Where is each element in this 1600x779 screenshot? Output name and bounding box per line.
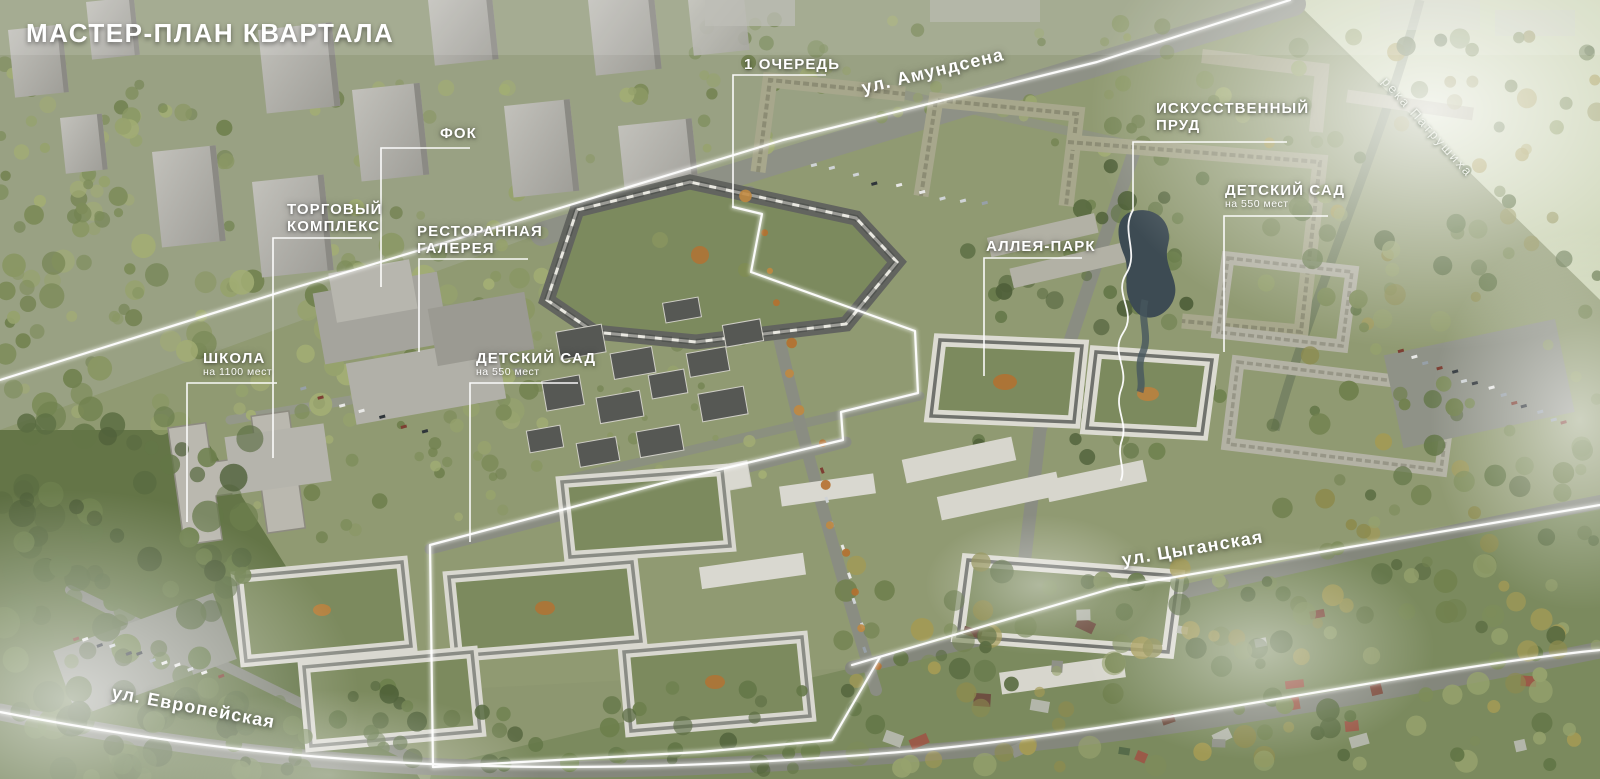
label-alley-park: АЛЛЕЯ-ПАРК	[986, 238, 1096, 255]
label-kindergarten-east-capacity: на 550 мест	[1225, 199, 1345, 211]
label-mall-line1: ТОРГОВЫЙ	[287, 201, 383, 218]
page-title: МАСТЕР-ПЛАН КВАРТАЛА	[26, 18, 394, 49]
label-school-text: ШКОЛА	[203, 350, 265, 367]
label-artificial-pond-line2: ПРУД	[1156, 117, 1200, 134]
annotation-overlay: МАСТЕР-ПЛАН КВАРТАЛА 1 ОЧЕРЕДЬ ФОК ТОРГО…	[0, 0, 1600, 779]
label-kindergarten-east: ДЕТСКИЙ САД на 550 мест	[1225, 182, 1345, 211]
label-fok-text: ФОК	[440, 125, 477, 142]
label-mall-line2: КОМПЛЕКС	[287, 218, 380, 235]
label-phase1: 1 ОЧЕРЕДЬ	[744, 56, 840, 73]
label-restaurant-gallery-line1: РЕСТОРАННАЯ	[417, 223, 543, 240]
label-kindergarten-east-text: ДЕТСКИЙ САД	[1225, 182, 1345, 199]
label-artificial-pond: ИСКУССТВЕННЫЙ ПРУД	[1156, 100, 1309, 134]
street-label-evropeyskaya: ул. Европейская	[110, 682, 277, 733]
label-alley-park-text: АЛЛЕЯ-ПАРК	[986, 238, 1096, 255]
label-artificial-pond-line1: ИСКУССТВЕННЫЙ	[1156, 100, 1309, 117]
label-kindergarten-west-capacity: на 550 мест	[476, 367, 596, 379]
label-phase1-text: 1 ОЧЕРЕДЬ	[744, 56, 840, 73]
label-restaurant-gallery: РЕСТОРАННАЯ ГАЛЕРЕЯ	[417, 223, 543, 257]
masterplan-slide: МАСТЕР-ПЛАН КВАРТАЛА 1 ОЧЕРЕДЬ ФОК ТОРГО…	[0, 0, 1600, 779]
label-mall: ТОРГОВЫЙ КОМПЛЕКС	[287, 201, 383, 235]
label-school: ШКОЛА на 1100 мест	[203, 350, 272, 379]
label-fok: ФОК	[440, 125, 477, 142]
label-kindergarten-west-text: ДЕТСКИЙ САД	[476, 350, 596, 367]
label-school-capacity: на 1100 мест	[203, 367, 272, 379]
label-kindergarten-west: ДЕТСКИЙ САД на 550 мест	[476, 350, 596, 379]
street-label-amundsen: ул. Амундсена	[860, 44, 1007, 98]
street-label-tsyganskaya: ул. Цыганская	[1120, 527, 1265, 571]
river-label-patrushikha: река Патрушиха	[1379, 74, 1477, 180]
label-restaurant-gallery-line2: ГАЛЕРЕЯ	[417, 240, 495, 257]
